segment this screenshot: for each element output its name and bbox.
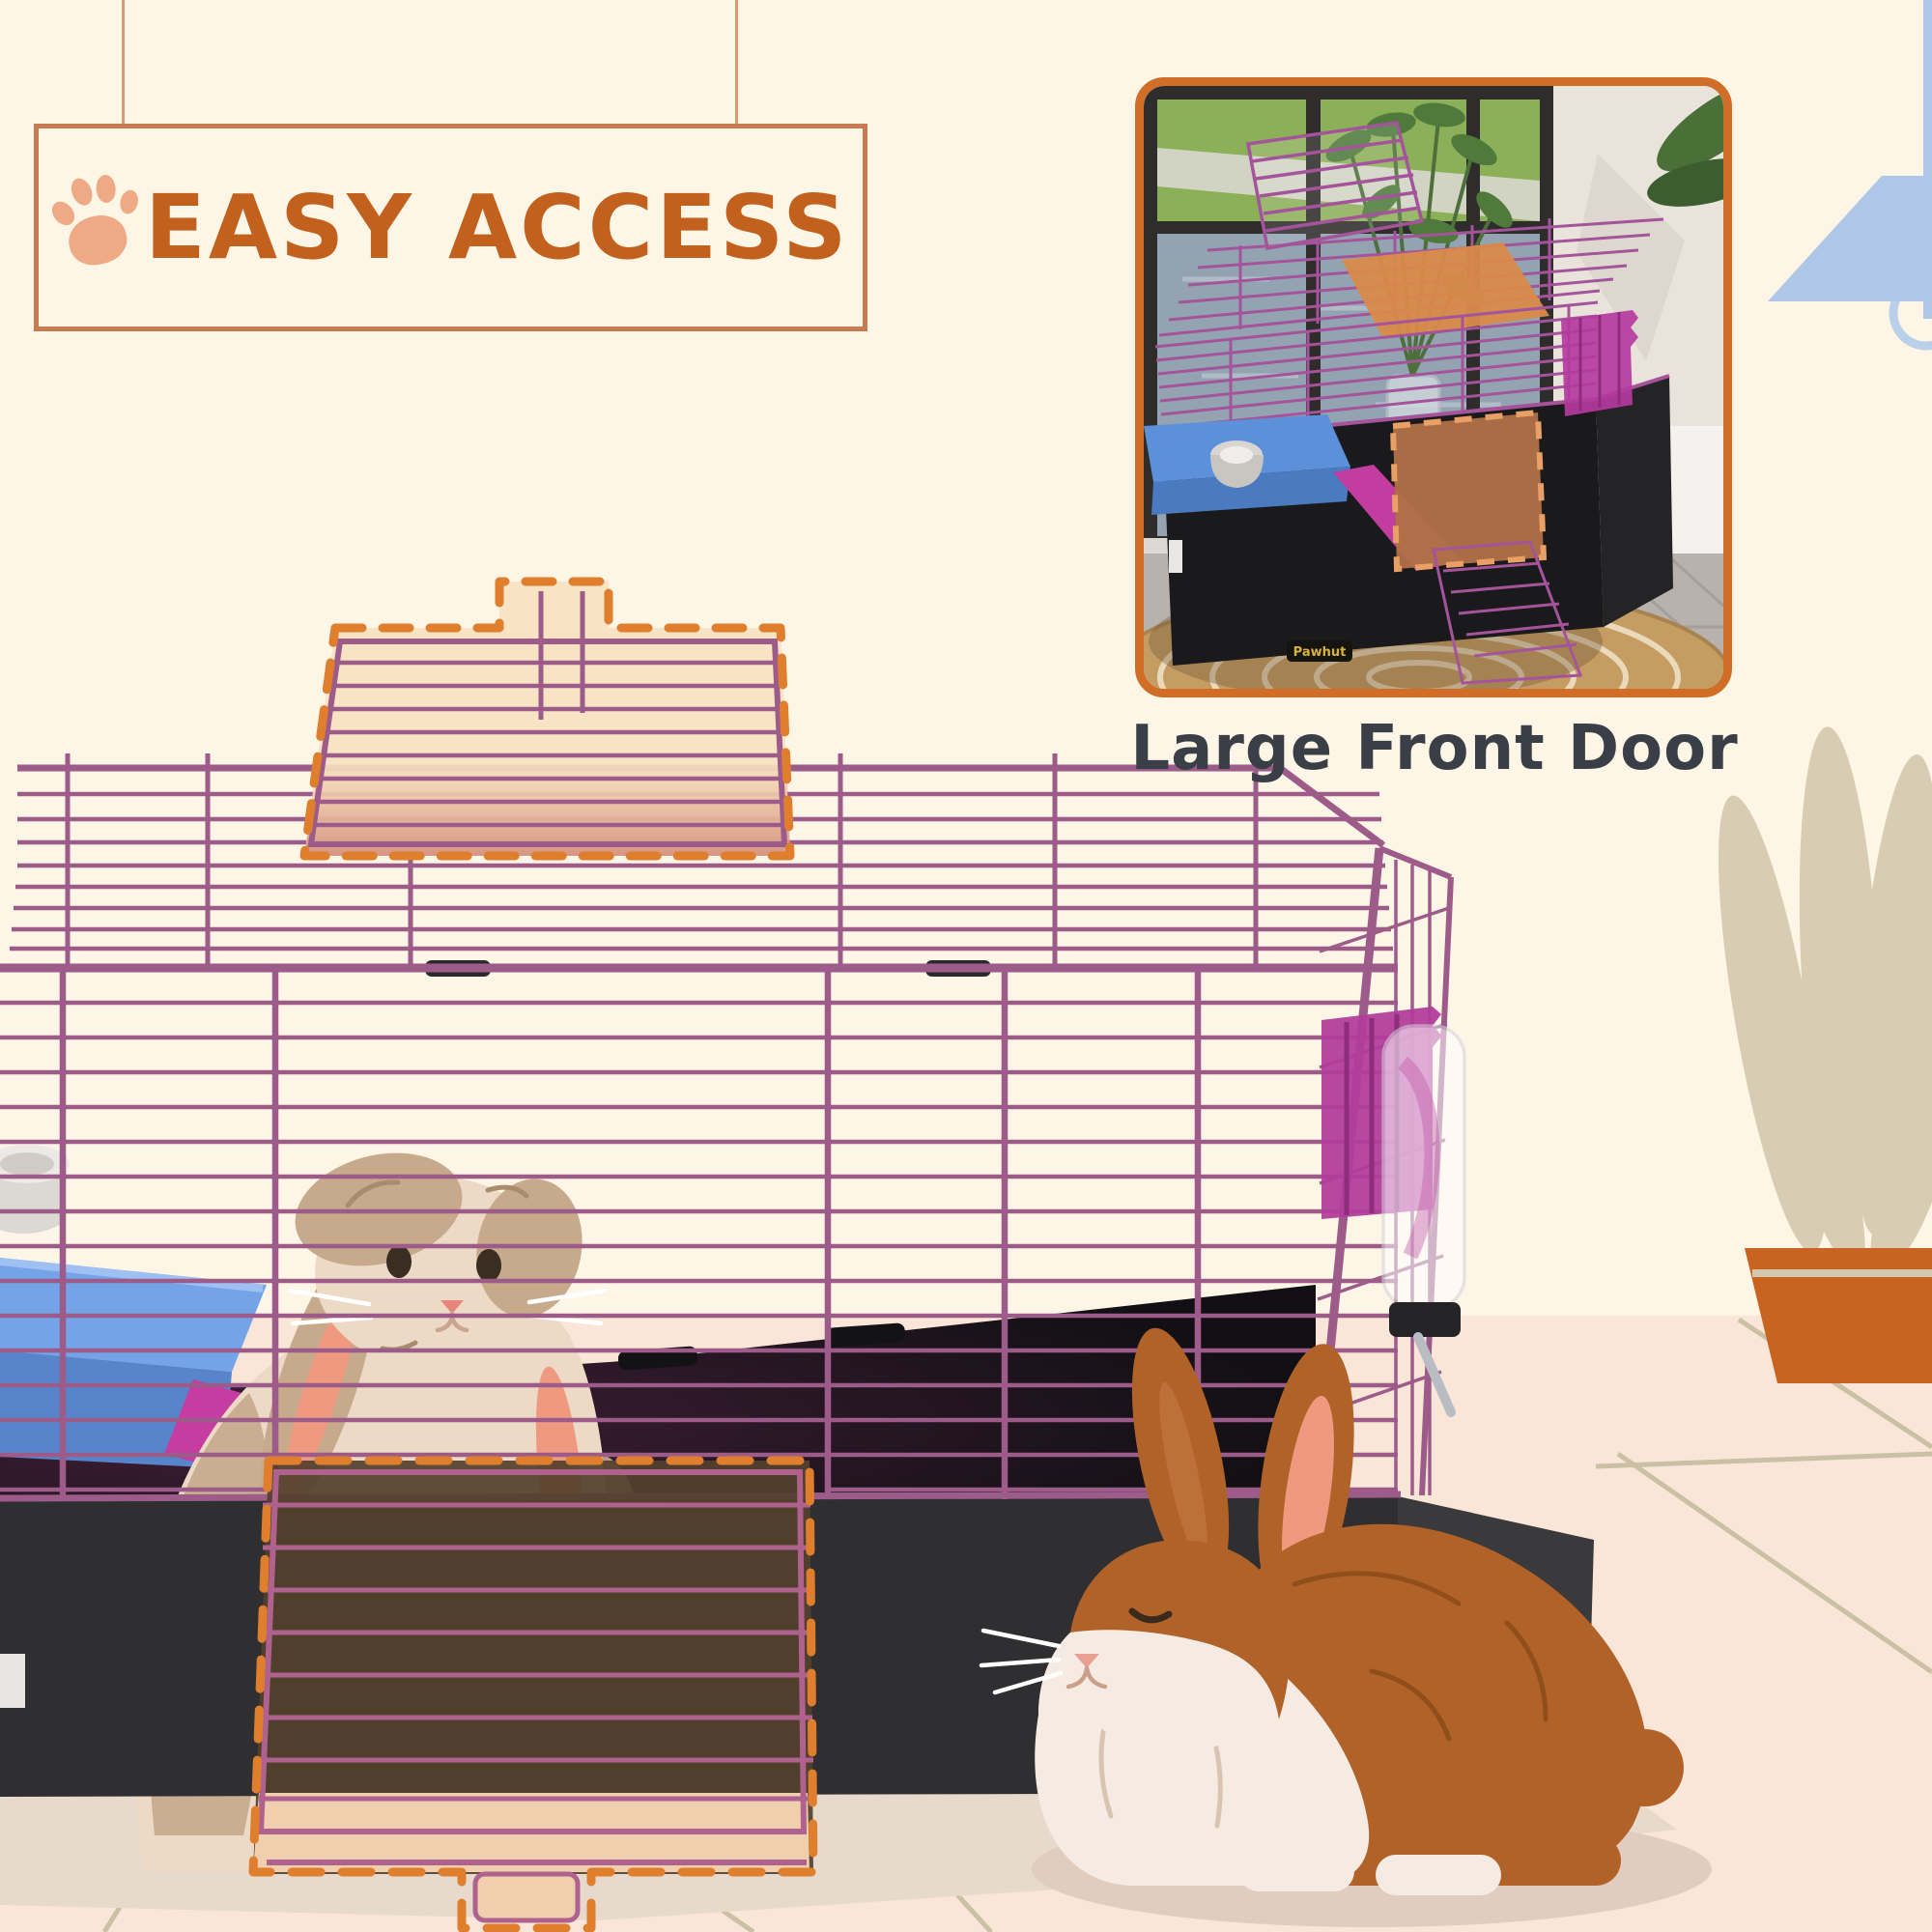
rabbit-paw <box>1238 1851 1354 1891</box>
hanging-string-right <box>735 0 738 124</box>
photo-hay-rack <box>1561 310 1638 416</box>
lop-eye <box>386 1245 412 1278</box>
hanging-string-left <box>122 0 125 124</box>
page-title: EASY ACCESS <box>145 176 849 279</box>
title-sign: EASY ACCESS <box>34 124 867 331</box>
brand-logo: Pawhut <box>1293 645 1347 660</box>
page: EASY ACCESS <box>0 0 1932 1932</box>
inset-caption: Large Front Door <box>1125 713 1744 784</box>
inset-photo: Pawhut <box>1135 77 1732 697</box>
base-label <box>0 1654 25 1708</box>
front-door-highlight <box>253 1461 813 1928</box>
pot-stripe <box>1752 1269 1932 1277</box>
photo-blue-platform <box>1144 414 1350 515</box>
bottle-cap <box>1389 1302 1461 1337</box>
inset-photo-image: Pawhut <box>1144 86 1723 689</box>
rabbit-paw <box>1376 1855 1501 1895</box>
paw-icon <box>46 165 149 271</box>
plant-pot <box>1745 1248 1932 1383</box>
door-tab <box>475 1874 578 1920</box>
food-bowl <box>0 1145 70 1234</box>
lop-eye <box>476 1249 501 1282</box>
